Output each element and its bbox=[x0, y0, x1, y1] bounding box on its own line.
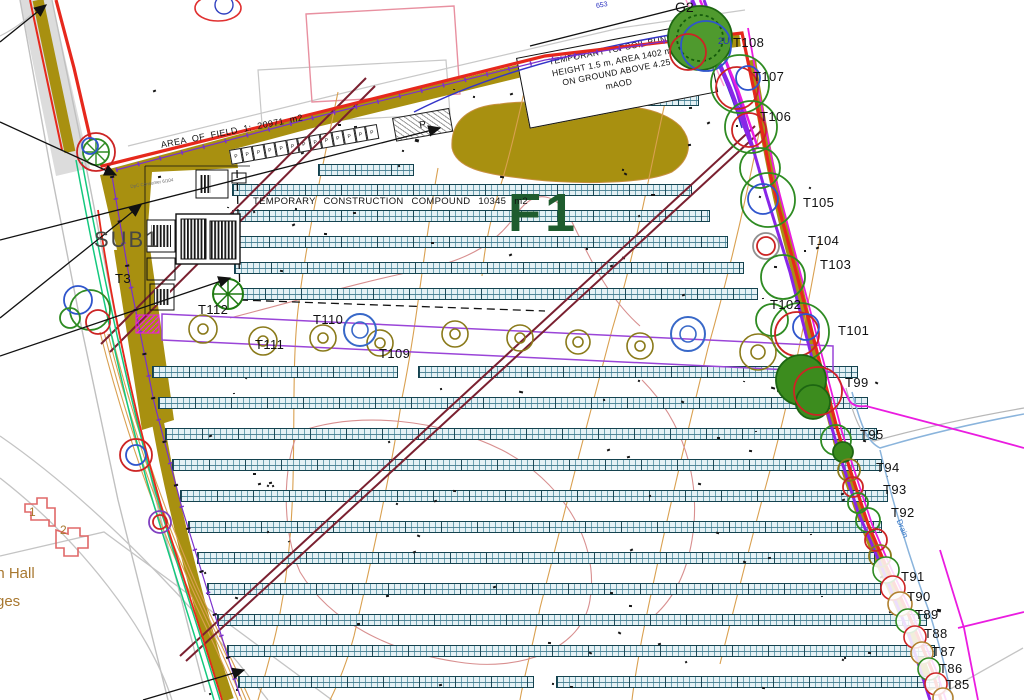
grid-connection-label: G2 bbox=[675, 0, 694, 15]
tree-label-T90: T90 bbox=[907, 590, 931, 603]
compound-note: TEMPORARY CONSTRUCTION COMPOUND 10345 m2 bbox=[253, 196, 528, 207]
tree-label-T112: T112 bbox=[198, 303, 228, 316]
tree-label-T107: T107 bbox=[753, 70, 784, 83]
tree-label-T88: T88 bbox=[924, 627, 948, 640]
place-label: 1 bbox=[29, 506, 36, 518]
place-label: 2 bbox=[60, 524, 67, 536]
tree-label-T109: T109 bbox=[379, 347, 410, 360]
tree-label-T87: T87 bbox=[932, 645, 956, 658]
spot-level-note: 653 bbox=[595, 1, 608, 10]
tree-label-T111: T111 bbox=[255, 338, 284, 351]
field-label: F1 bbox=[508, 182, 579, 244]
tree-label-T95: T95 bbox=[860, 428, 884, 441]
tree-label-T102: T102 bbox=[770, 298, 801, 311]
drain-label: Drain bbox=[895, 518, 911, 539]
tree-label-T105: T105 bbox=[803, 196, 834, 209]
tree-label-T3: T3 bbox=[115, 272, 131, 285]
tree-label-T94: T94 bbox=[876, 461, 900, 474]
place-label: on Hall bbox=[0, 566, 35, 581]
tree-label-T108: T108 bbox=[733, 36, 764, 49]
tree-label-T91: T91 bbox=[901, 570, 925, 583]
tree-label-T104: T104 bbox=[808, 234, 839, 247]
tree-label-T110: T110 bbox=[313, 313, 343, 326]
tree-label-T103: T103 bbox=[820, 258, 851, 271]
equipment-note: DpC Consumer 6/104 bbox=[130, 177, 174, 189]
field-area-note: AREA OF FIELD 1: 20971 m2 bbox=[160, 112, 304, 149]
tree-label-T85: T85 bbox=[946, 678, 970, 691]
substation-label: SUB1 bbox=[94, 227, 159, 253]
tree-label-T93: T93 bbox=[883, 483, 907, 496]
tree-label-T89: T89 bbox=[915, 608, 939, 621]
labels-layer: F1 SUB1 G2 AREA OF FIELD 1: 20971 m2 TEM… bbox=[0, 0, 1024, 700]
tree-label-T101: T101 bbox=[838, 324, 869, 337]
tree-label-T99: T99 bbox=[845, 376, 869, 389]
pole-note: 2U bbox=[718, 36, 730, 46]
site-plan-canvas: PPPPPPPPPPPPP P TEMPORARY TOPSOIL BUND: … bbox=[0, 0, 1024, 700]
tree-label-T106: T106 bbox=[760, 110, 791, 123]
tree-label-T92: T92 bbox=[891, 506, 915, 519]
place-label: ges bbox=[0, 594, 20, 609]
tree-label-T86: T86 bbox=[939, 662, 963, 675]
